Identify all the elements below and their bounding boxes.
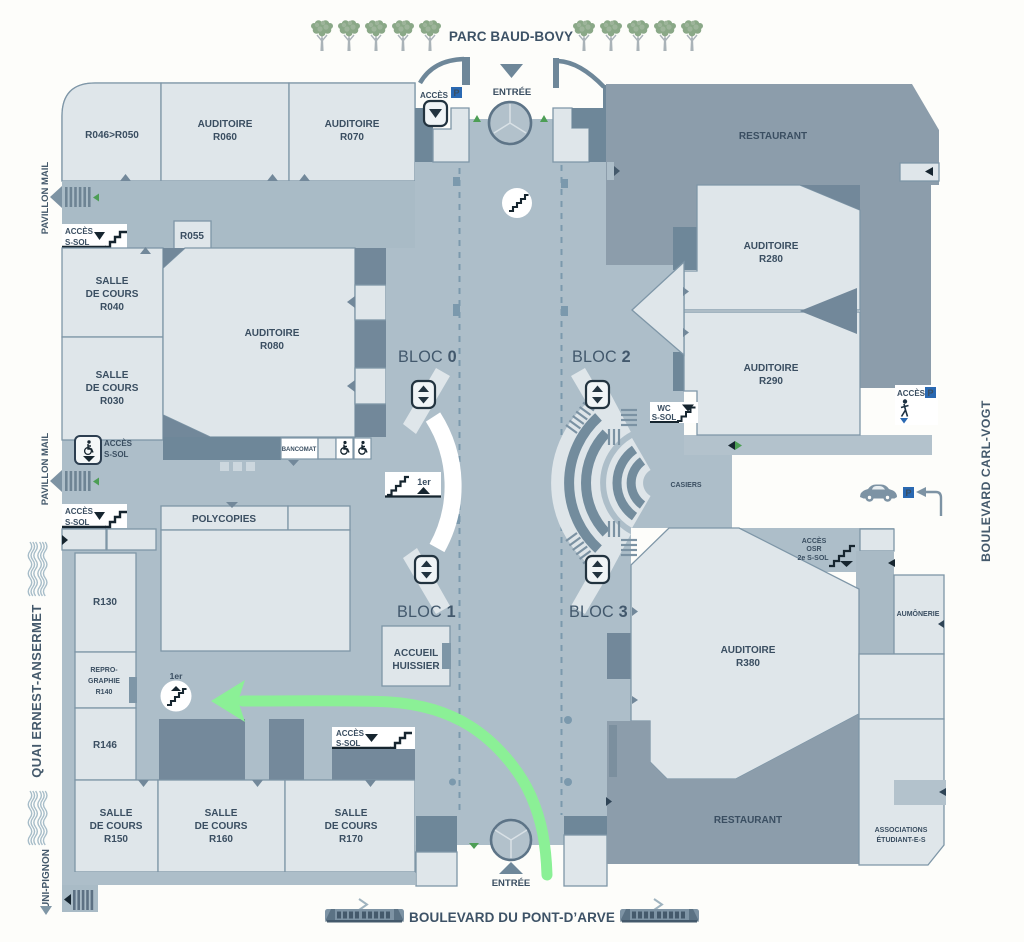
svg-text:SALLE: SALLE bbox=[335, 808, 368, 819]
svg-text:ASSOCIATIONS: ASSOCIATIONS bbox=[875, 827, 928, 834]
svg-text:ACCÈS: ACCÈS bbox=[65, 507, 94, 516]
svg-text:UNI-PIGNON: UNI-PIGNON bbox=[41, 849, 52, 909]
svg-text:HUISSIER: HUISSIER bbox=[392, 661, 440, 672]
svg-text:R380: R380 bbox=[736, 658, 760, 669]
svg-text:DE COURS: DE COURS bbox=[325, 821, 378, 832]
svg-text:BOULEVARD DU PONT-D’ARVE: BOULEVARD DU PONT-D’ARVE bbox=[409, 910, 615, 925]
svg-text:R055: R055 bbox=[180, 231, 204, 242]
svg-text:P: P bbox=[927, 388, 933, 398]
svg-text:P: P bbox=[453, 88, 459, 98]
svg-text:ACCÈS: ACCÈS bbox=[420, 91, 449, 100]
svg-text:P: P bbox=[905, 488, 911, 498]
svg-text:BLOC 3: BLOC 3 bbox=[569, 603, 628, 621]
svg-text:GRAPHIE: GRAPHIE bbox=[88, 678, 120, 685]
svg-text:SALLE: SALLE bbox=[100, 808, 133, 819]
svg-text:R280: R280 bbox=[759, 254, 783, 265]
svg-text:SALLE: SALLE bbox=[96, 276, 129, 287]
svg-text:DE COURS: DE COURS bbox=[195, 821, 248, 832]
svg-text:R080: R080 bbox=[260, 341, 284, 352]
svg-text:AUDITOIRE: AUDITOIRE bbox=[198, 119, 253, 130]
svg-text:S-SOL: S-SOL bbox=[65, 238, 90, 247]
svg-text:R060: R060 bbox=[213, 132, 237, 143]
svg-text:S-SOL: S-SOL bbox=[65, 518, 90, 527]
svg-text:1er: 1er bbox=[170, 671, 183, 681]
svg-text:R030: R030 bbox=[100, 396, 124, 407]
svg-text:R130: R130 bbox=[93, 597, 117, 608]
svg-text:PAVILLON MAIL: PAVILLON MAIL bbox=[40, 433, 51, 506]
svg-text:BANCOMAT: BANCOMAT bbox=[282, 447, 317, 453]
svg-text:R160: R160 bbox=[209, 834, 233, 845]
svg-text:AUDITOIRE: AUDITOIRE bbox=[325, 119, 380, 130]
svg-text:AUDITOIRE: AUDITOIRE bbox=[744, 241, 799, 252]
svg-text:2e S-SOL: 2e S-SOL bbox=[797, 555, 829, 562]
svg-text:ENTRÉE: ENTRÉE bbox=[492, 878, 531, 889]
svg-text:R290: R290 bbox=[759, 376, 783, 387]
svg-text:R070: R070 bbox=[340, 132, 364, 143]
svg-text:R170: R170 bbox=[339, 834, 363, 845]
svg-text:BLOC 0: BLOC 0 bbox=[398, 348, 457, 366]
svg-text:RESTAURANT: RESTAURANT bbox=[714, 815, 782, 826]
svg-text:AUDITOIRE: AUDITOIRE bbox=[245, 328, 300, 339]
svg-text:R140: R140 bbox=[96, 689, 113, 696]
svg-text:SALLE: SALLE bbox=[96, 370, 129, 381]
svg-text:BLOC 2: BLOC 2 bbox=[572, 348, 631, 366]
svg-text:1er: 1er bbox=[417, 477, 431, 487]
svg-text:PARC BAUD-BOVY: PARC BAUD-BOVY bbox=[449, 29, 573, 44]
svg-text:DE COURS: DE COURS bbox=[86, 289, 139, 300]
svg-text:AUDITOIRE: AUDITOIRE bbox=[721, 645, 776, 656]
svg-text:BLOC 1: BLOC 1 bbox=[397, 603, 456, 621]
svg-text:WC: WC bbox=[657, 404, 671, 413]
svg-text:ÉTUDIANT-E-S: ÉTUDIANT-E-S bbox=[877, 835, 926, 844]
svg-text:S-SOL: S-SOL bbox=[336, 739, 361, 748]
svg-text:S-SOL: S-SOL bbox=[652, 413, 677, 422]
svg-text:ACCÈS: ACCÈS bbox=[65, 227, 94, 236]
svg-text:DE COURS: DE COURS bbox=[90, 821, 143, 832]
svg-text:ACCUEIL: ACCUEIL bbox=[394, 648, 438, 659]
svg-text:R146: R146 bbox=[93, 740, 117, 751]
svg-text:CASIERS: CASIERS bbox=[670, 482, 701, 489]
svg-text:ACCÈS: ACCÈS bbox=[897, 389, 926, 398]
svg-text:RESTAURANT: RESTAURANT bbox=[739, 131, 807, 142]
svg-text:BOULEVARD CARL-VOGT: BOULEVARD CARL-VOGT bbox=[979, 400, 993, 562]
svg-text:SALLE: SALLE bbox=[205, 808, 238, 819]
svg-text:DE COURS: DE COURS bbox=[86, 383, 139, 394]
svg-text:R040: R040 bbox=[100, 302, 124, 313]
svg-text:ACCÈS: ACCÈS bbox=[802, 536, 827, 545]
svg-text:QUAI ERNEST-ANSERMET: QUAI ERNEST-ANSERMET bbox=[29, 604, 44, 777]
svg-text:AUDITOIRE: AUDITOIRE bbox=[744, 363, 799, 374]
svg-text:PAVILLON MAIL: PAVILLON MAIL bbox=[40, 162, 51, 235]
svg-text:ACCÈS: ACCÈS bbox=[336, 729, 365, 738]
svg-text:ACCÈS: ACCÈS bbox=[104, 439, 133, 448]
svg-text:ENTRÉE: ENTRÉE bbox=[493, 87, 532, 98]
svg-text:REPRO-: REPRO- bbox=[90, 667, 118, 674]
svg-text:AUMÔNERIE: AUMÔNERIE bbox=[897, 609, 940, 618]
svg-text:OSR: OSR bbox=[806, 546, 821, 553]
svg-text:R150: R150 bbox=[104, 834, 128, 845]
svg-text:POLYCOPIES: POLYCOPIES bbox=[192, 514, 256, 525]
svg-text:S-SOL: S-SOL bbox=[104, 450, 129, 459]
svg-text:R046>R050: R046>R050 bbox=[85, 130, 139, 141]
